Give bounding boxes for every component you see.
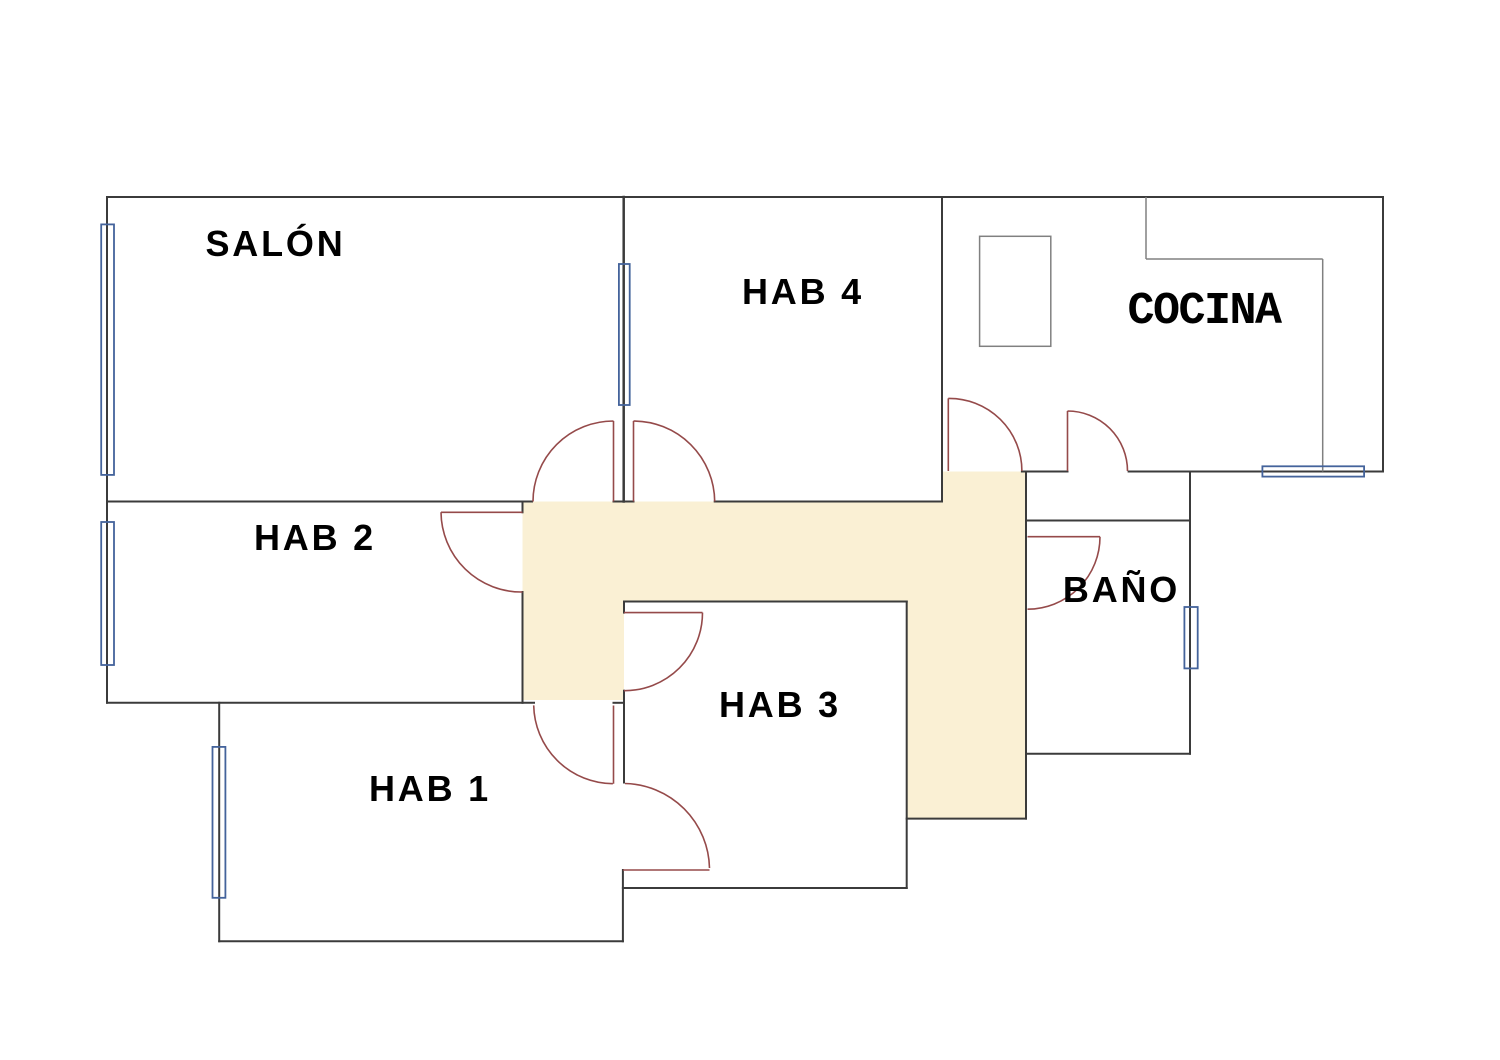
svg-text:BAÑO: BAÑO bbox=[1063, 568, 1180, 610]
svg-text:HAB 4: HAB 4 bbox=[742, 271, 864, 312]
svg-text:SALÓN: SALÓN bbox=[206, 222, 346, 264]
svg-text:HAB 1: HAB 1 bbox=[369, 768, 491, 809]
svg-text:HAB 2: HAB 2 bbox=[254, 517, 376, 558]
svg-text:COCINA: COCINA bbox=[1127, 286, 1282, 337]
svg-text:HAB 3: HAB 3 bbox=[719, 684, 841, 725]
